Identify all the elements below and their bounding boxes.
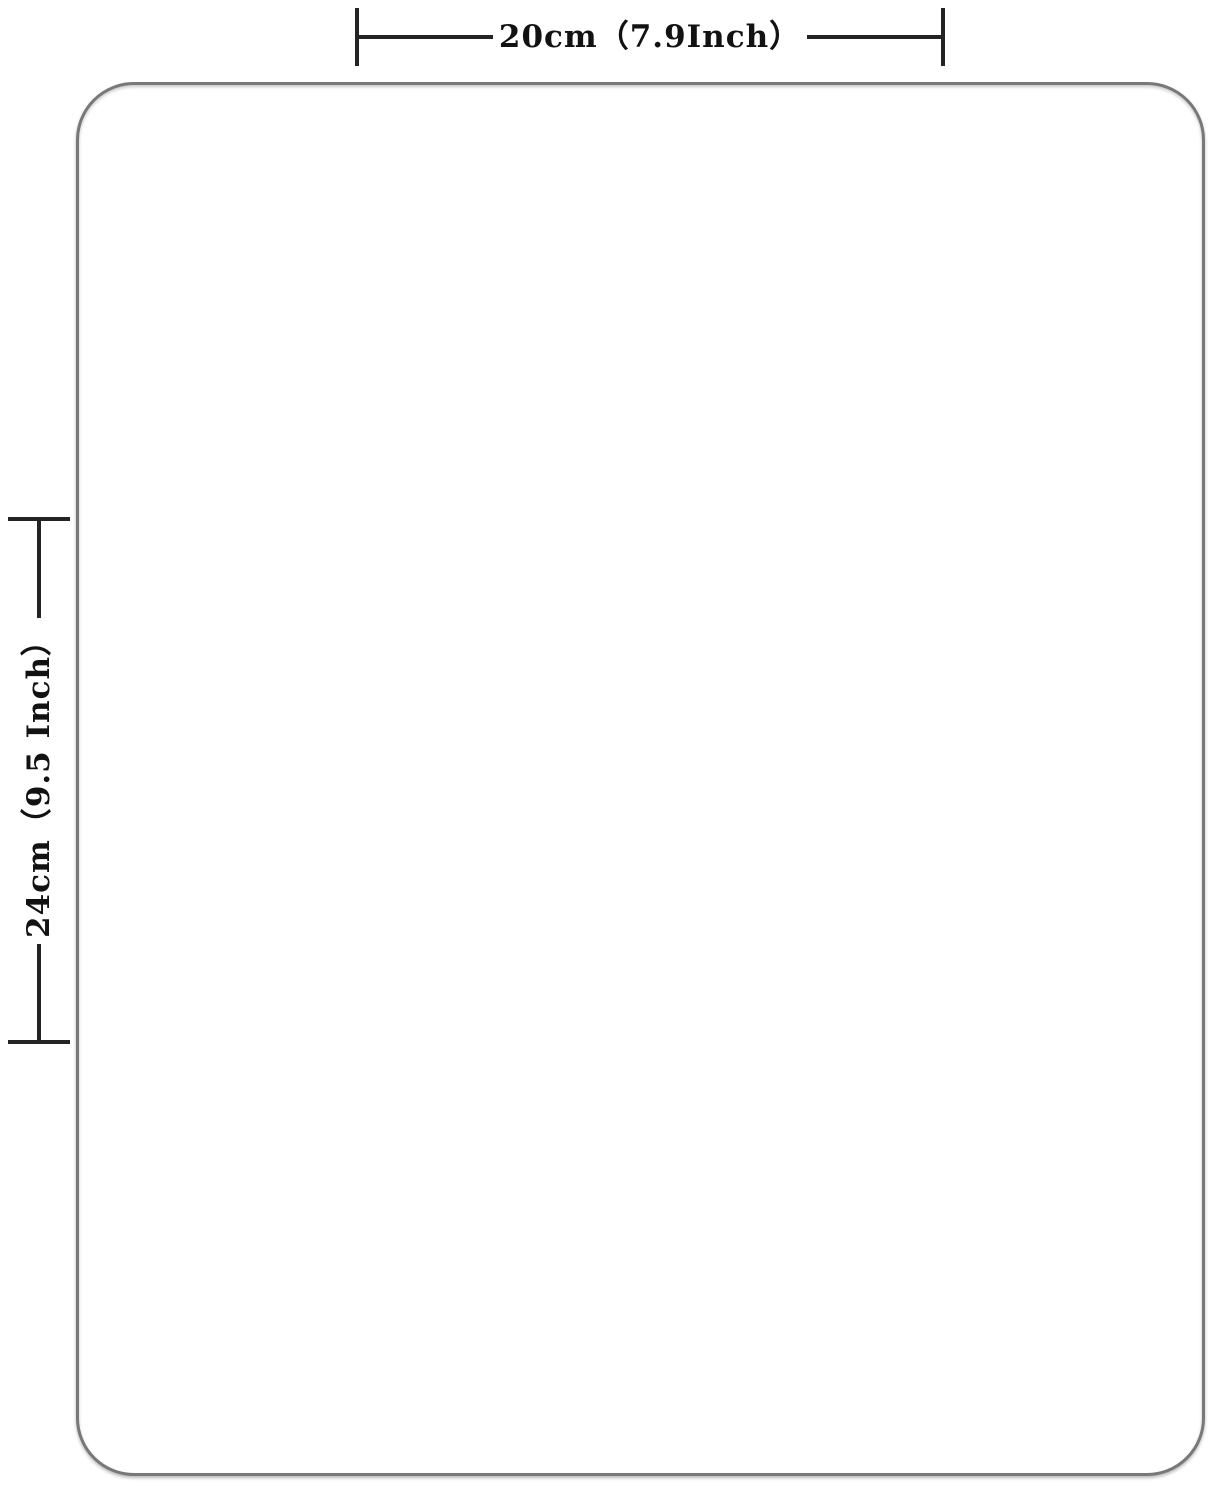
dimension-tick-right	[941, 8, 945, 66]
dimension-line-bottom-segment	[37, 944, 41, 1041]
dimension-line-left-segment	[359, 35, 493, 39]
width-dimension: 20cm（7.9Inch）	[355, 7, 945, 67]
dimension-tick-bottom	[8, 1040, 70, 1044]
dimension-line-right-segment	[807, 35, 941, 39]
product-surface	[76, 82, 1205, 1476]
height-dimension-label: 24cm（9.5 Inch）	[24, 618, 55, 944]
product-dimension-figure: 20cm（7.9Inch） 24cm（9.5 Inch）	[0, 0, 1217, 1492]
width-dimension-label: 20cm（7.9Inch）	[493, 22, 807, 53]
dimension-line-top-segment	[37, 521, 41, 618]
height-dimension: 24cm（9.5 Inch）	[8, 517, 70, 1044]
